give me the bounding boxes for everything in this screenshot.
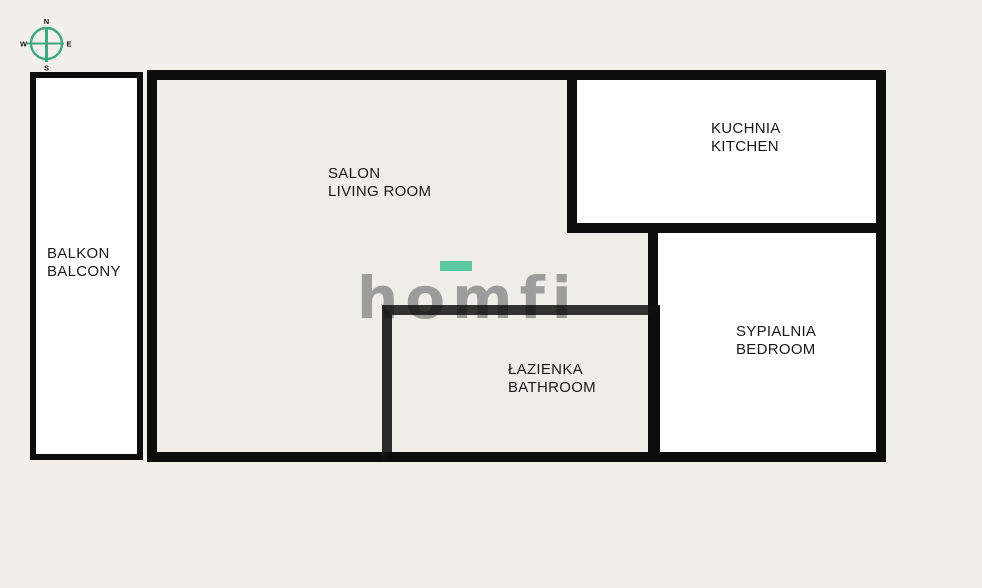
balcony-label-en: BALCONY xyxy=(47,263,121,281)
floor-plan: N E S W homfi SALON LIVING ROOM KUCHNIA … xyxy=(0,0,982,588)
bedroom-label-pl: SYPIALNIA xyxy=(736,323,816,341)
logo-accent-bar xyxy=(440,261,472,271)
kitchen-label-en: KITCHEN xyxy=(711,138,781,156)
kitchen-label: KUCHNIA KITCHEN xyxy=(711,120,781,156)
compass-north-label: N xyxy=(44,17,49,26)
compass-west-label: W xyxy=(20,40,28,49)
living-room-label-pl: SALON xyxy=(328,165,431,183)
kitchen-label-pl: KUCHNIA xyxy=(711,120,781,138)
bathroom-label-en: BATHROOM xyxy=(508,379,596,397)
bedroom-label: SYPIALNIA BEDROOM xyxy=(736,323,816,359)
bedroom-label-en: BEDROOM xyxy=(736,341,816,359)
compass-rose-icon: N E S W xyxy=(14,10,80,76)
bathroom-label-pl: ŁAZIENKA xyxy=(508,361,596,379)
living-room-label-en: LIVING ROOM xyxy=(328,183,431,201)
bathroom-label: ŁAZIENKA BATHROOM xyxy=(508,361,596,397)
compass-east-label: E xyxy=(66,40,71,49)
balcony-label-pl: BALKON xyxy=(47,245,121,263)
balcony-label: BALKON BALCONY xyxy=(47,245,121,281)
living-room-label: SALON LIVING ROOM xyxy=(328,165,431,201)
